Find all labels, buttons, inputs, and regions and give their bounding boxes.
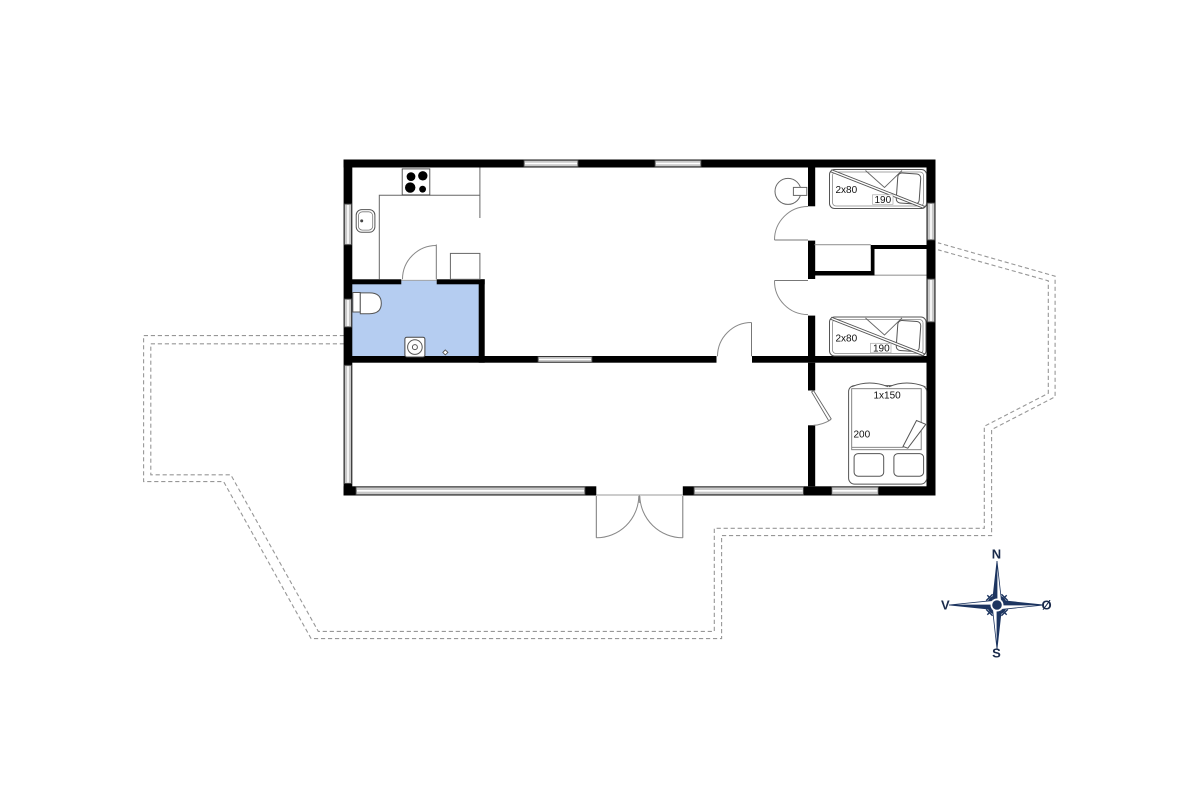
svg-text:2x80: 2x80	[836, 333, 858, 344]
svg-text:190: 190	[873, 343, 890, 354]
svg-text:2x80: 2x80	[836, 185, 858, 196]
svg-text:Ø: Ø	[1041, 598, 1051, 613]
svg-text:S: S	[992, 646, 1001, 661]
svg-text:V: V	[941, 598, 950, 613]
svg-text:200: 200	[854, 430, 871, 441]
svg-text:N: N	[992, 547, 1001, 562]
svg-text:1x150: 1x150	[874, 390, 902, 401]
svg-text:190: 190	[875, 195, 892, 206]
